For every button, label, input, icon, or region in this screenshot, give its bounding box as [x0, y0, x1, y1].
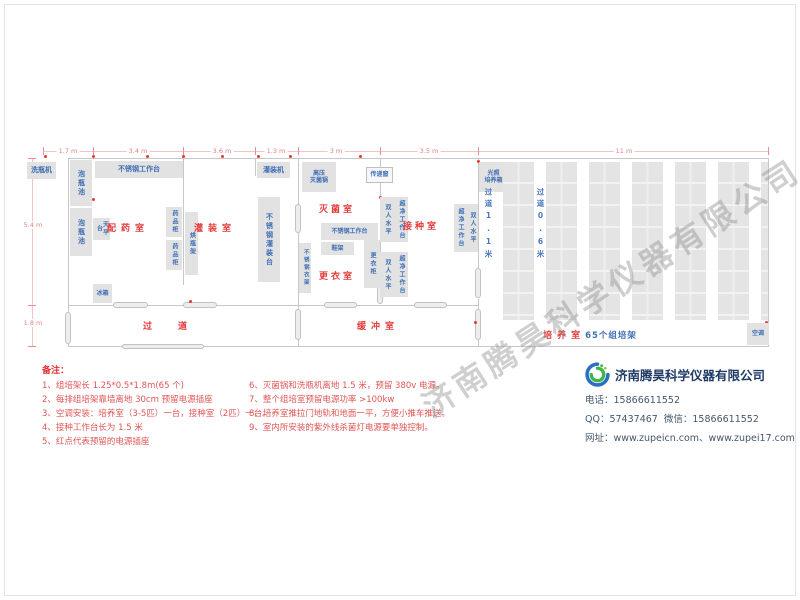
- room-label-buffer: 缓冲室: [340, 319, 416, 332]
- wall-segment: [68, 158, 769, 159]
- equipment-clean-bench-right-b: 双人水平: [466, 204, 478, 252]
- equipment-filling-machine: 灌装机: [257, 162, 290, 178]
- power-outlet-dot: [182, 155, 185, 158]
- door-leaf: [65, 312, 71, 344]
- wall-segment: [768, 158, 769, 347]
- note-item: 1、组培架长 1.25*0.5*1.8m(65 个): [42, 379, 271, 393]
- equipment-steel-filling-table: 不锈钢灌装台: [258, 197, 280, 282]
- web-label: 网址：: [585, 433, 614, 444]
- notes-column-left: 1、组培架长 1.25*0.5*1.8m(65 个)2、每排组培架靠墙离地 30…: [42, 379, 271, 449]
- power-outlet-dot: [92, 198, 95, 201]
- dimension-label: 3.6 m: [211, 147, 234, 155]
- power-outlet-dot: [474, 321, 477, 324]
- culture-room-rack-count: 65个组培架: [585, 331, 637, 341]
- dimension-label: 3.5 m: [418, 147, 441, 155]
- dimension-tick: [183, 147, 184, 155]
- note-item: 2、每排组培架靠墙离地 30cm 预留电源插座: [42, 393, 271, 407]
- power-outlet-dot: [92, 155, 95, 158]
- power-outlet-dot: [44, 155, 47, 158]
- power-outlet-dot: [189, 300, 192, 303]
- culture-rack-column: [761, 162, 768, 320]
- culture-rack-column: [546, 162, 577, 320]
- equipment-air-conditioner: 空调: [747, 323, 769, 345]
- equipment-refrigerator: 冰箱: [93, 284, 112, 303]
- room-label-sterilization: 灭菌室: [302, 202, 372, 215]
- note-item: 5、红点代表预留的电源插座: [42, 435, 271, 449]
- dimension-tick: [768, 147, 769, 155]
- door-leaf: [414, 302, 447, 308]
- notes-column-right: 6、灭菌锅和洗瓶机离地 1.5 米，预留 380v 电源。7、整个组培室预留电源…: [249, 379, 450, 435]
- equipment-steel-workbench-1: 不锈钢工作台: [95, 161, 183, 178]
- dimension-label: 1.7 m: [57, 147, 80, 155]
- door-leaf: [475, 268, 481, 298]
- equipment-clean-bench-lower-a: 双人水平: [380, 252, 394, 297]
- room-label-culture: 培养室65个组培架: [510, 328, 670, 341]
- note-item: 4、接种工作台长为 1.5 米: [42, 421, 271, 435]
- note-item: 8、培养室推拉门地轨和地面一平，方便小推车推送。: [249, 407, 450, 421]
- equipment-clean-bench-lower-b: 超净工作台: [394, 252, 408, 297]
- door-leaf: [324, 302, 357, 308]
- dimension-tick: [28, 305, 36, 306]
- equipment-shoe-rack: 鞋架: [321, 242, 354, 255]
- wall-segment: [255, 158, 256, 176]
- phone-label: 电话：: [585, 395, 614, 406]
- company-info: 济南腾昊科学仪器有限公司 电话：15866611552 QQ：57437467 …: [585, 362, 790, 444]
- dimension-tick: [380, 147, 381, 155]
- door-leaf: [122, 344, 204, 349]
- wechat-value: 15866611552: [692, 414, 759, 425]
- culture-rack-column: [675, 162, 706, 320]
- notes-section: 备注： 1、组培架长 1.25*0.5*1.8m(65 个)2、每排组培架靠墙离…: [42, 363, 69, 379]
- power-outlet-dot: [146, 155, 149, 158]
- door-leaf: [295, 204, 301, 233]
- culture-rack-column: [503, 162, 534, 320]
- note-item: 6、灭菌锅和洗瓶机离地 1.5 米，预留 380v 电源。: [249, 379, 450, 393]
- company-phone-line: 电话：15866611552: [585, 392, 790, 406]
- dimension-tick: [28, 158, 36, 159]
- wechat-label: 微信：: [664, 414, 693, 425]
- dimension-label: 3 m: [328, 147, 345, 155]
- web-value: www.zupeicn.com、www.zupei17.com: [614, 433, 795, 444]
- equipment-bottle-soak-pool-2: 泡瓶池: [70, 208, 92, 256]
- dimension-line: [43, 151, 769, 152]
- power-outlet-dot: [221, 155, 224, 158]
- room-label-filling: 灌装室: [180, 221, 250, 234]
- dimension-label: 3.4 m: [127, 147, 150, 155]
- wall-segment: [298, 339, 299, 347]
- dimension-tick: [255, 147, 256, 155]
- dimension-label: 11 m: [614, 147, 635, 155]
- phone-value: 15866611552: [614, 395, 681, 406]
- wall-segment: [478, 339, 479, 347]
- dimension-label: 5.4 m: [22, 221, 45, 229]
- door-leaf: [475, 309, 481, 340]
- door-leaf: [113, 302, 148, 308]
- dimension-tick: [43, 147, 44, 155]
- qq-value: 57437467: [609, 414, 657, 425]
- equipment-bottle-washer: 洗瓶机: [27, 162, 56, 179]
- culture-rack-column: [589, 162, 620, 320]
- dimension-tick: [28, 346, 36, 347]
- company-logo: [585, 362, 610, 387]
- company-qq-line: QQ：57437467 微信：15866611552: [585, 411, 790, 425]
- room-label-changing: 更衣室: [302, 269, 372, 282]
- culture-rack-column: [718, 162, 749, 320]
- culture-room-label-red: 培养室: [543, 331, 585, 341]
- equipment-autoclave: 高压 灭菌锅: [302, 162, 336, 192]
- aisle-label-1-1m: 过道1.1米: [483, 188, 494, 264]
- door-leaf: [183, 302, 217, 308]
- room-label-aisle: 过道: [138, 319, 218, 332]
- dimension-tick: [298, 147, 299, 155]
- equipment-medicine-cabinet-2: 药品柜: [166, 240, 182, 270]
- note-item: 3、空调安装：培养室（3-5匹）一台，接种室（2匹）一台。: [42, 407, 271, 421]
- floor-plan: 1.7 m3.4 m3.6 m1.3 m3 m3.5 m11 m5.4 m1.8…: [0, 0, 800, 600]
- equipment-steel-clothes-rack: 不锈钢衣架: [299, 243, 311, 293]
- equipment-transfer-window: 传递窗: [366, 167, 393, 183]
- dimension-tick: [93, 147, 94, 155]
- equipment-bottle-soak-pool-1: 泡瓶池: [70, 160, 92, 206]
- note-item: 7、整个组培室预留电源功率 >100kw: [249, 393, 450, 407]
- note-item: 9、室内所安装的紫外线杀菌灯电源要单独控制。: [249, 421, 450, 435]
- dimension-tick: [478, 147, 479, 155]
- power-outlet-dot: [359, 155, 362, 158]
- door-leaf: [295, 309, 301, 340]
- equipment-steel-workbench-2: 不锈钢工作台: [321, 223, 378, 240]
- dimension-label: 1.8 m: [22, 319, 45, 327]
- notes-title: 备注：: [42, 363, 69, 376]
- company-web-line: 网址：www.zupeicn.com、www.zupei17.com: [585, 430, 790, 444]
- power-outlet-dot: [289, 155, 292, 158]
- aisle-label-0-6m: 过道0.6米: [535, 188, 546, 264]
- culture-rack-column: [632, 162, 663, 320]
- company-name: 济南腾昊科学仪器有限公司: [615, 365, 765, 384]
- power-outlet-dot: [257, 155, 260, 158]
- wall-segment: [298, 158, 299, 206]
- qq-label: QQ：: [585, 414, 609, 425]
- dimension-label: 1.3 m: [265, 147, 288, 155]
- room-label-inoculation: 接种室: [386, 219, 456, 232]
- room-label-dispensing: 配药室: [93, 221, 163, 234]
